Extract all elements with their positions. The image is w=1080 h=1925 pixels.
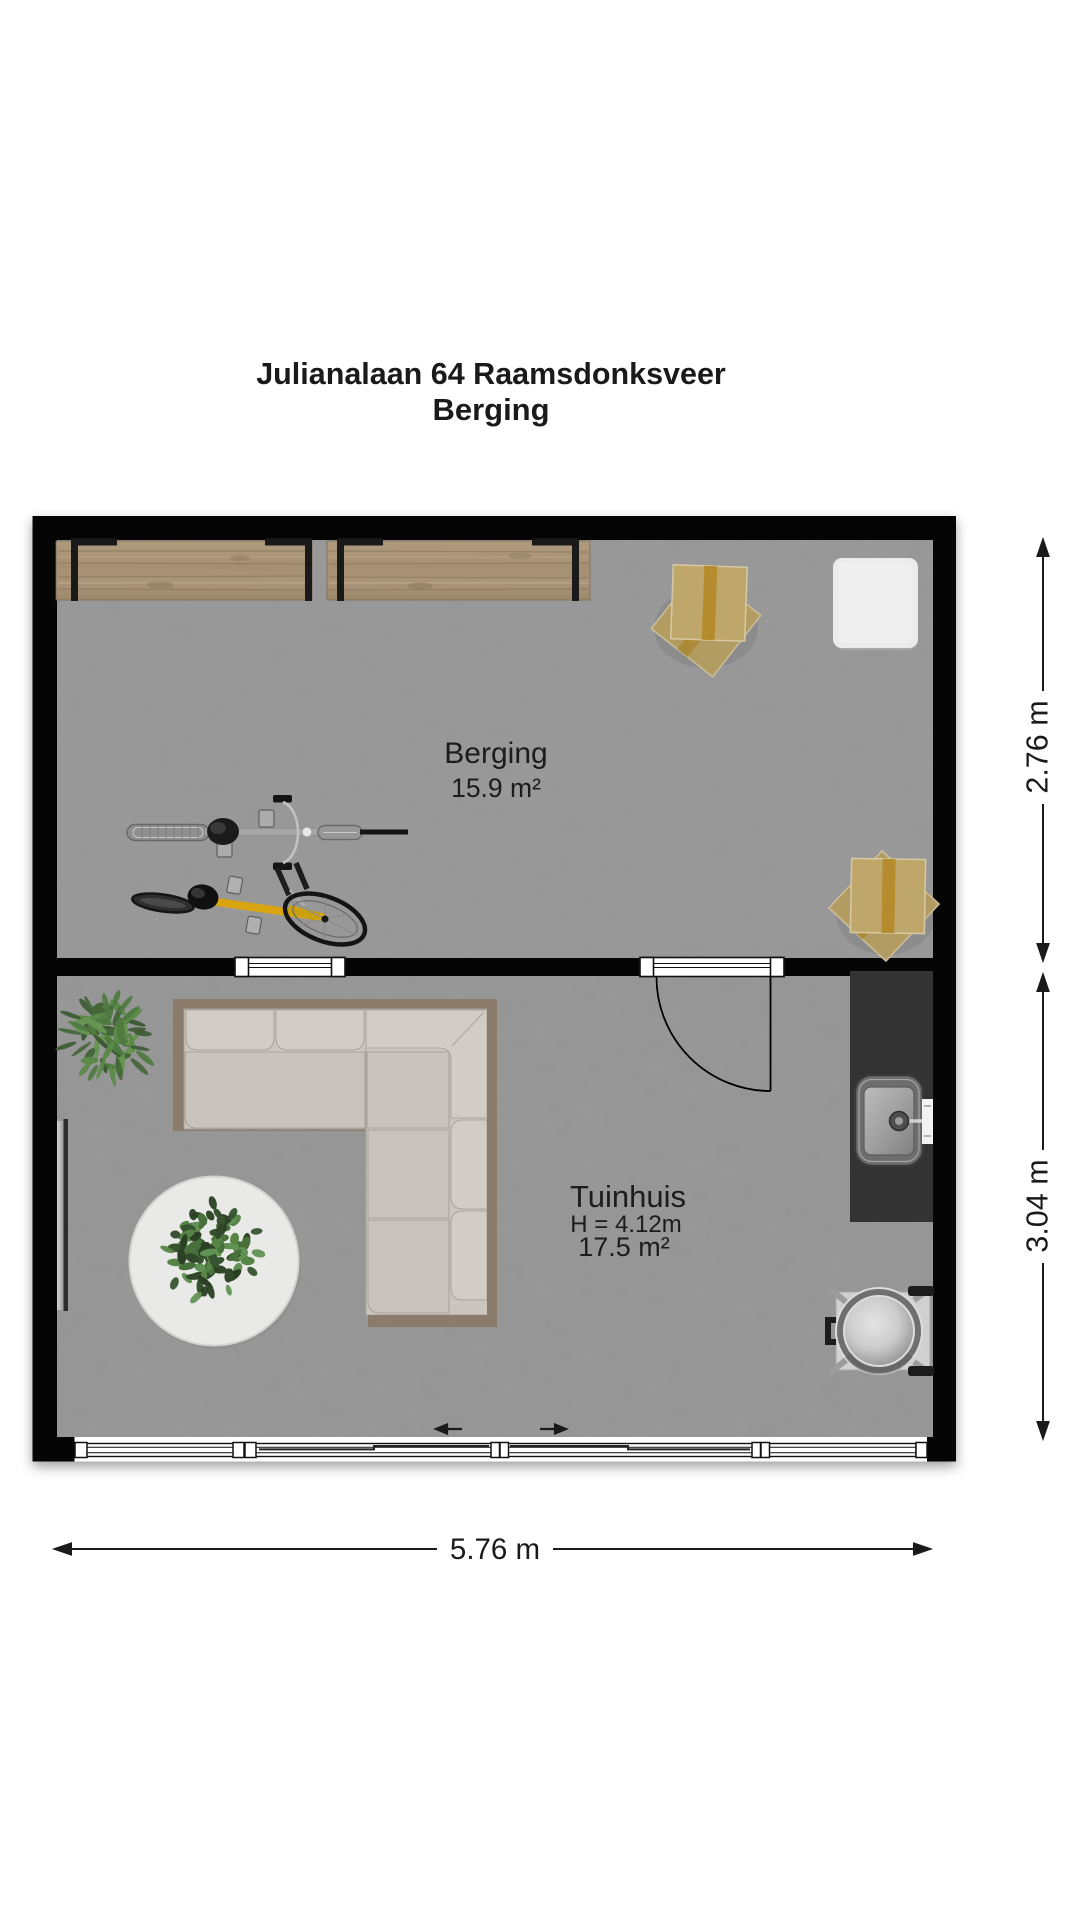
svg-text:3.04 m: 3.04 m: [1021, 1159, 1055, 1252]
svg-text:Tuinhuis: Tuinhuis: [570, 1179, 686, 1214]
svg-text:Julianalaan 64 Raamsdonksveer: Julianalaan 64 Raamsdonksveer: [256, 357, 726, 391]
svg-text:17.5 m²: 17.5 m²: [578, 1232, 670, 1262]
svg-text:2.76 m: 2.76 m: [1021, 700, 1055, 793]
svg-text:Berging: Berging: [444, 737, 547, 770]
svg-text:Berging: Berging: [432, 392, 549, 427]
svg-text:5.76 m: 5.76 m: [450, 1533, 540, 1566]
svg-text:15.9 m²: 15.9 m²: [451, 773, 541, 803]
